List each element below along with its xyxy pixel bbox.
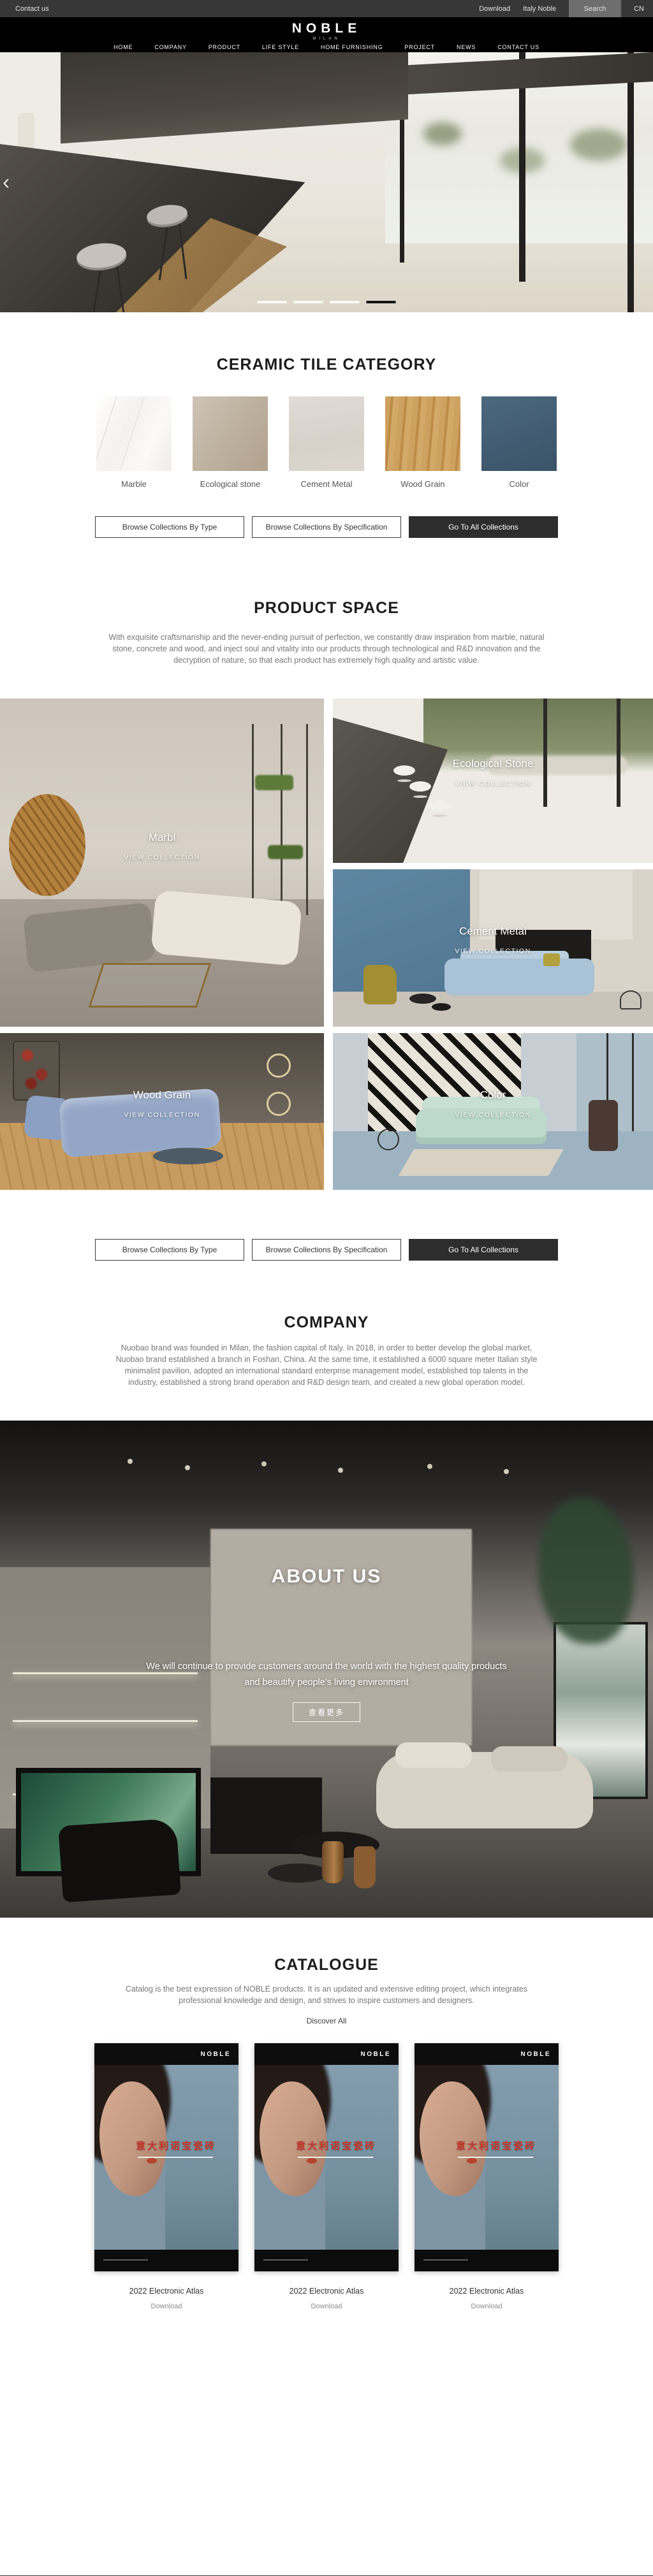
product-space-section: PRODUCT SPACE With exquisite craftsmansh… [0, 561, 653, 1261]
topbar-right: Download Italy Noble Search CN [479, 0, 644, 17]
tile-name: Wood Grain [0, 1089, 324, 1101]
wood-grain-swatch-image [385, 396, 460, 471]
tile-caption: Marbl VIEW COLLECTION [0, 831, 324, 861]
tile-swatch-color[interactable]: Color [481, 396, 557, 489]
decor [409, 994, 436, 1004]
decor [138, 2157, 213, 2158]
decor [627, 52, 634, 312]
decor [620, 990, 642, 1009]
catalogue-item-title: 2022 Electronic Atlas [254, 2287, 399, 2296]
nav-item-home[interactable]: HOME [114, 44, 133, 50]
view-more-button[interactable]: 查看更多 [293, 1702, 360, 1722]
view-collection-link[interactable]: VIEW COLLECTION [0, 853, 324, 861]
decor [89, 963, 212, 1008]
download-link[interactable]: Download [415, 2303, 559, 2310]
logo-subtext: MILAN [0, 37, 653, 41]
about-overlay: ABOUT US We will continue to provide cus… [0, 1421, 653, 1918]
tile-swatch-wood-grain[interactable]: Wood Grain [385, 396, 460, 489]
cover-top-band: NOBLE [415, 2043, 559, 2065]
carousel-pagination [258, 301, 396, 303]
contact-us-link[interactable]: Contact us [15, 5, 49, 13]
product-space-grid: Marbl VIEW COLLECTION Wood Grain VIE [0, 698, 653, 1190]
catalogue-card: NOBLE 意大利诺宝瓷砖 2022 Electronic Atlas Down… [94, 2043, 238, 2310]
space-tile-wood-grain[interactable]: Wood Grain VIEW COLLECTION [0, 1033, 324, 1190]
decor [423, 122, 462, 145]
hero-carousel: ‹ [0, 52, 653, 312]
product-space-title: PRODUCT SPACE [0, 599, 653, 618]
italy-noble-link[interactable]: Italy Noble [523, 5, 556, 13]
decor [363, 965, 397, 1004]
cover-bottom-band [94, 2250, 238, 2271]
decor [147, 2158, 157, 2164]
decor [306, 724, 308, 915]
space-tile-cement-metal[interactable]: Cement Metal VIEW COLLECTION [333, 869, 653, 1027]
decor [153, 1148, 223, 1164]
decor [378, 1129, 399, 1150]
tile-name: Cement Metal [333, 925, 653, 938]
decor [399, 1149, 564, 1176]
decor [543, 953, 560, 966]
ecological-stone-swatch-image [193, 396, 268, 471]
decor [458, 2157, 533, 2158]
cover-headline: 意大利诺宝瓷砖 [296, 2139, 376, 2152]
carousel-dot[interactable] [258, 301, 287, 303]
company-title: COMPANY [0, 1313, 653, 1332]
decor [281, 724, 282, 915]
space-tile-marble[interactable]: Marbl VIEW COLLECTION [0, 698, 324, 1027]
product-space-description: With exquisite craftsmanship and the nev… [106, 632, 547, 666]
grid-right-column: Ecological Stone VIEW COLLECTION [333, 698, 653, 1190]
about-us-banner: ABOUT US We will continue to provide cus… [0, 1421, 653, 1918]
header: NOBLE MILAN HOME COMPANY PRODUCT LIFE ST… [0, 17, 653, 52]
decor [429, 800, 450, 811]
logo-text: NOBLE [0, 22, 653, 35]
tile-swatch-cement-metal[interactable]: Cement Metal [289, 396, 364, 489]
carousel-dot[interactable] [330, 301, 360, 303]
catalogue-item-title: 2022 Electronic Atlas [415, 2287, 559, 2296]
all-collections-button[interactable]: Go To All Collections [409, 516, 558, 538]
decor [18, 113, 34, 151]
search-button[interactable]: Search [569, 0, 621, 17]
cover-brand-logo: NOBLE [521, 2051, 552, 2058]
carousel-dot[interactable] [294, 301, 323, 303]
cover-brand-logo: NOBLE [361, 2051, 392, 2058]
space-tile-ecological-stone[interactable]: Ecological Stone VIEW COLLECTION [333, 698, 653, 863]
catalogue-section: CATALOGUE Catalog is the best expression… [0, 1918, 653, 2575]
download-link[interactable]: Download [94, 2303, 238, 2310]
tile-caption: Ecological Stone VIEW COLLECTION [333, 758, 653, 788]
logo[interactable]: NOBLE MILAN [0, 17, 653, 41]
view-collection-link[interactable]: VIEW COLLECTION [333, 1111, 653, 1118]
tile-caption: Cement Metal VIEW COLLECTION [333, 925, 653, 955]
cover-headline: 意大利诺宝瓷砖 [136, 2139, 216, 2152]
catalogue-card: NOBLE 意大利诺宝瓷砖 2022 Electronic Atlas Down… [254, 2043, 399, 2310]
decor [0, 52, 408, 148]
company-section: COMPANY Nuobao brand was founded in Mila… [0, 1261, 653, 1421]
nav-item-company[interactable]: COMPANY [154, 44, 186, 50]
space-tile-color[interactable]: Color VIEW COLLECTION [333, 1033, 653, 1190]
about-text-line: We will continue to provide customers ar… [146, 1659, 507, 1675]
cement-metal-swatch-image [289, 396, 364, 471]
browse-by-specification-button[interactable]: Browse Collections By Specification [252, 516, 401, 538]
decor [432, 1003, 451, 1011]
about-title: ABOUT US [272, 1566, 382, 1588]
page: Contact us Download Italy Noble Search C… [0, 0, 653, 2576]
tile-swatch-ecological-stone[interactable]: Ecological stone [193, 396, 268, 489]
decor [617, 698, 620, 807]
tile-name: Ecological Stone [333, 758, 653, 771]
catalogue-item-title: 2022 Electronic Atlas [94, 2287, 238, 2296]
topbar: Contact us Download Italy Noble Search C… [0, 0, 653, 17]
download-link[interactable]: Download [254, 2303, 399, 2310]
category-swatches: Marble Ecological stone Cement Metal Woo… [0, 396, 653, 489]
nav-item-contact-us[interactable]: CONTACT US [497, 44, 539, 50]
catalogue-cover[interactable]: NOBLE 意大利诺宝瓷砖 [94, 2043, 238, 2271]
all-collections-button[interactable]: Go To All Collections [409, 1239, 558, 1261]
browse-by-specification-button[interactable]: Browse Collections By Specification [252, 1239, 401, 1261]
decor [255, 775, 293, 790]
marble-swatch-image [96, 396, 172, 471]
cover-top-band: NOBLE [94, 2043, 238, 2065]
cover-bottom-band [254, 2250, 399, 2271]
decor [467, 2158, 477, 2164]
download-link[interactable]: Download [479, 5, 510, 13]
decor [22, 1050, 33, 1061]
nav-item-product[interactable]: PRODUCT [209, 44, 240, 50]
swatch-label: Ecological stone [193, 479, 268, 489]
decor [444, 959, 594, 995]
catalogue-cards: NOBLE 意大利诺宝瓷砖 2022 Electronic Atlas Down… [0, 2043, 653, 2310]
decor [267, 1053, 291, 1078]
decor [252, 724, 254, 915]
decor [543, 698, 547, 807]
tile-caption: Wood Grain VIEW COLLECTION [0, 1089, 324, 1118]
swatch-label: Wood Grain [385, 479, 460, 489]
nav-item-home-furnishing[interactable]: HOME FURNISHING [321, 44, 383, 50]
grid-left-column: Marbl VIEW COLLECTION Wood Grain VIE [0, 698, 324, 1190]
discover-all-link[interactable]: Discover All [288, 2016, 365, 2025]
main-nav: HOME COMPANY PRODUCT LIFE STYLE HOME FUR… [0, 44, 653, 50]
view-collection-link[interactable]: VIEW COLLECTION [333, 780, 653, 788]
category-section: CERAMIC TILE CATEGORY Marble Ecological … [0, 312, 653, 561]
decor [307, 2158, 317, 2164]
decor [570, 129, 627, 161]
catalogue-cover[interactable]: NOBLE 意大利诺宝瓷砖 [415, 2043, 559, 2271]
swatch-label: Cement Metal [289, 479, 364, 489]
catalogue-title: CATALOGUE [0, 1956, 653, 1974]
language-toggle[interactable]: CN [634, 5, 644, 13]
decor [150, 890, 302, 966]
nav-item-life-style[interactable]: LIFE STYLE [262, 44, 299, 50]
catalogue-description: Catalog is the best expression of NOBLE … [122, 1983, 531, 2006]
about-text-line: and beautify people's living environment [244, 1675, 409, 1691]
tile-caption: Color VIEW COLLECTION [333, 1089, 653, 1118]
cover-headline: 意大利诺宝瓷砖 [456, 2139, 536, 2152]
color-swatch-image [481, 396, 557, 471]
tile-name: Marbl [0, 831, 324, 844]
browse-by-type-button[interactable]: Browse Collections By Type [95, 1239, 244, 1261]
category-title: CERAMIC TILE CATEGORY [0, 356, 653, 374]
cover-bottom-band [415, 2250, 559, 2271]
nav-item-project[interactable]: PROJECT [404, 44, 435, 50]
view-collection-link[interactable]: VIEW COLLECTION [333, 948, 653, 955]
tile-swatch-marble[interactable]: Marble [96, 396, 172, 489]
view-collection-link[interactable]: VIEW COLLECTION [0, 1111, 324, 1118]
nav-item-news[interactable]: NEWS [457, 44, 476, 50]
company-description: Nuobao brand was founded in Milan, the f… [113, 1342, 540, 1388]
browse-by-type-button[interactable]: Browse Collections By Type [95, 516, 244, 538]
cover-top-band: NOBLE [254, 2043, 399, 2065]
tile-name: Color [333, 1089, 653, 1101]
catalogue-card: NOBLE 意大利诺宝瓷砖 2022 Electronic Atlas Down… [415, 2043, 559, 2310]
decor [298, 2157, 373, 2158]
swatch-label: Color [481, 479, 557, 489]
swatch-label: Marble [96, 479, 172, 489]
category-buttons: Browse Collections By Type Browse Collec… [0, 516, 653, 538]
product-space-buttons: Browse Collections By Type Browse Collec… [0, 1239, 653, 1261]
catalogue-cover[interactable]: NOBLE 意大利诺宝瓷砖 [254, 2043, 399, 2271]
carousel-prev-arrow[interactable]: ‹ [3, 171, 10, 193]
cover-brand-logo: NOBLE [201, 2051, 231, 2058]
carousel-dot-active[interactable] [367, 301, 396, 303]
